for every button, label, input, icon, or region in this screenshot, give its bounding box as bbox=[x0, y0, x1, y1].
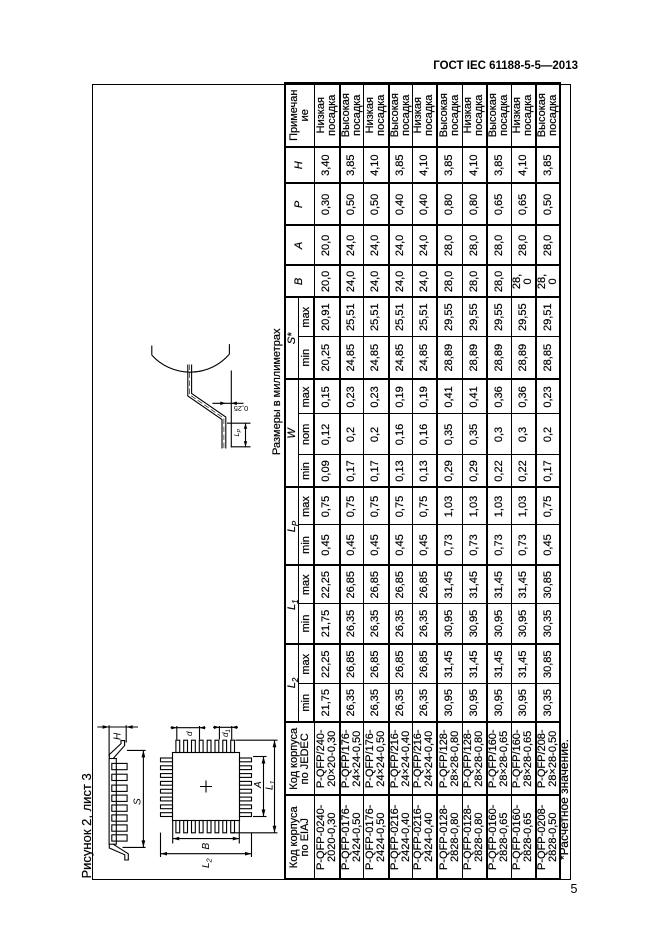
svg-text:0,25: 0,25 bbox=[233, 404, 248, 413]
svg-text:P: P bbox=[237, 428, 243, 432]
svg-text:L: L bbox=[201, 862, 212, 868]
svg-text:1: 1 bbox=[268, 780, 277, 784]
svg-text:L: L bbox=[264, 784, 275, 790]
svg-text:A: A bbox=[253, 781, 264, 789]
svg-text:2: 2 bbox=[204, 857, 213, 863]
svg-text:B: B bbox=[201, 842, 212, 849]
svg-text:S: S bbox=[132, 798, 143, 805]
svg-text:H: H bbox=[112, 732, 123, 740]
svg-text:1: 1 bbox=[226, 729, 232, 732]
svg-text:d: d bbox=[185, 731, 194, 736]
